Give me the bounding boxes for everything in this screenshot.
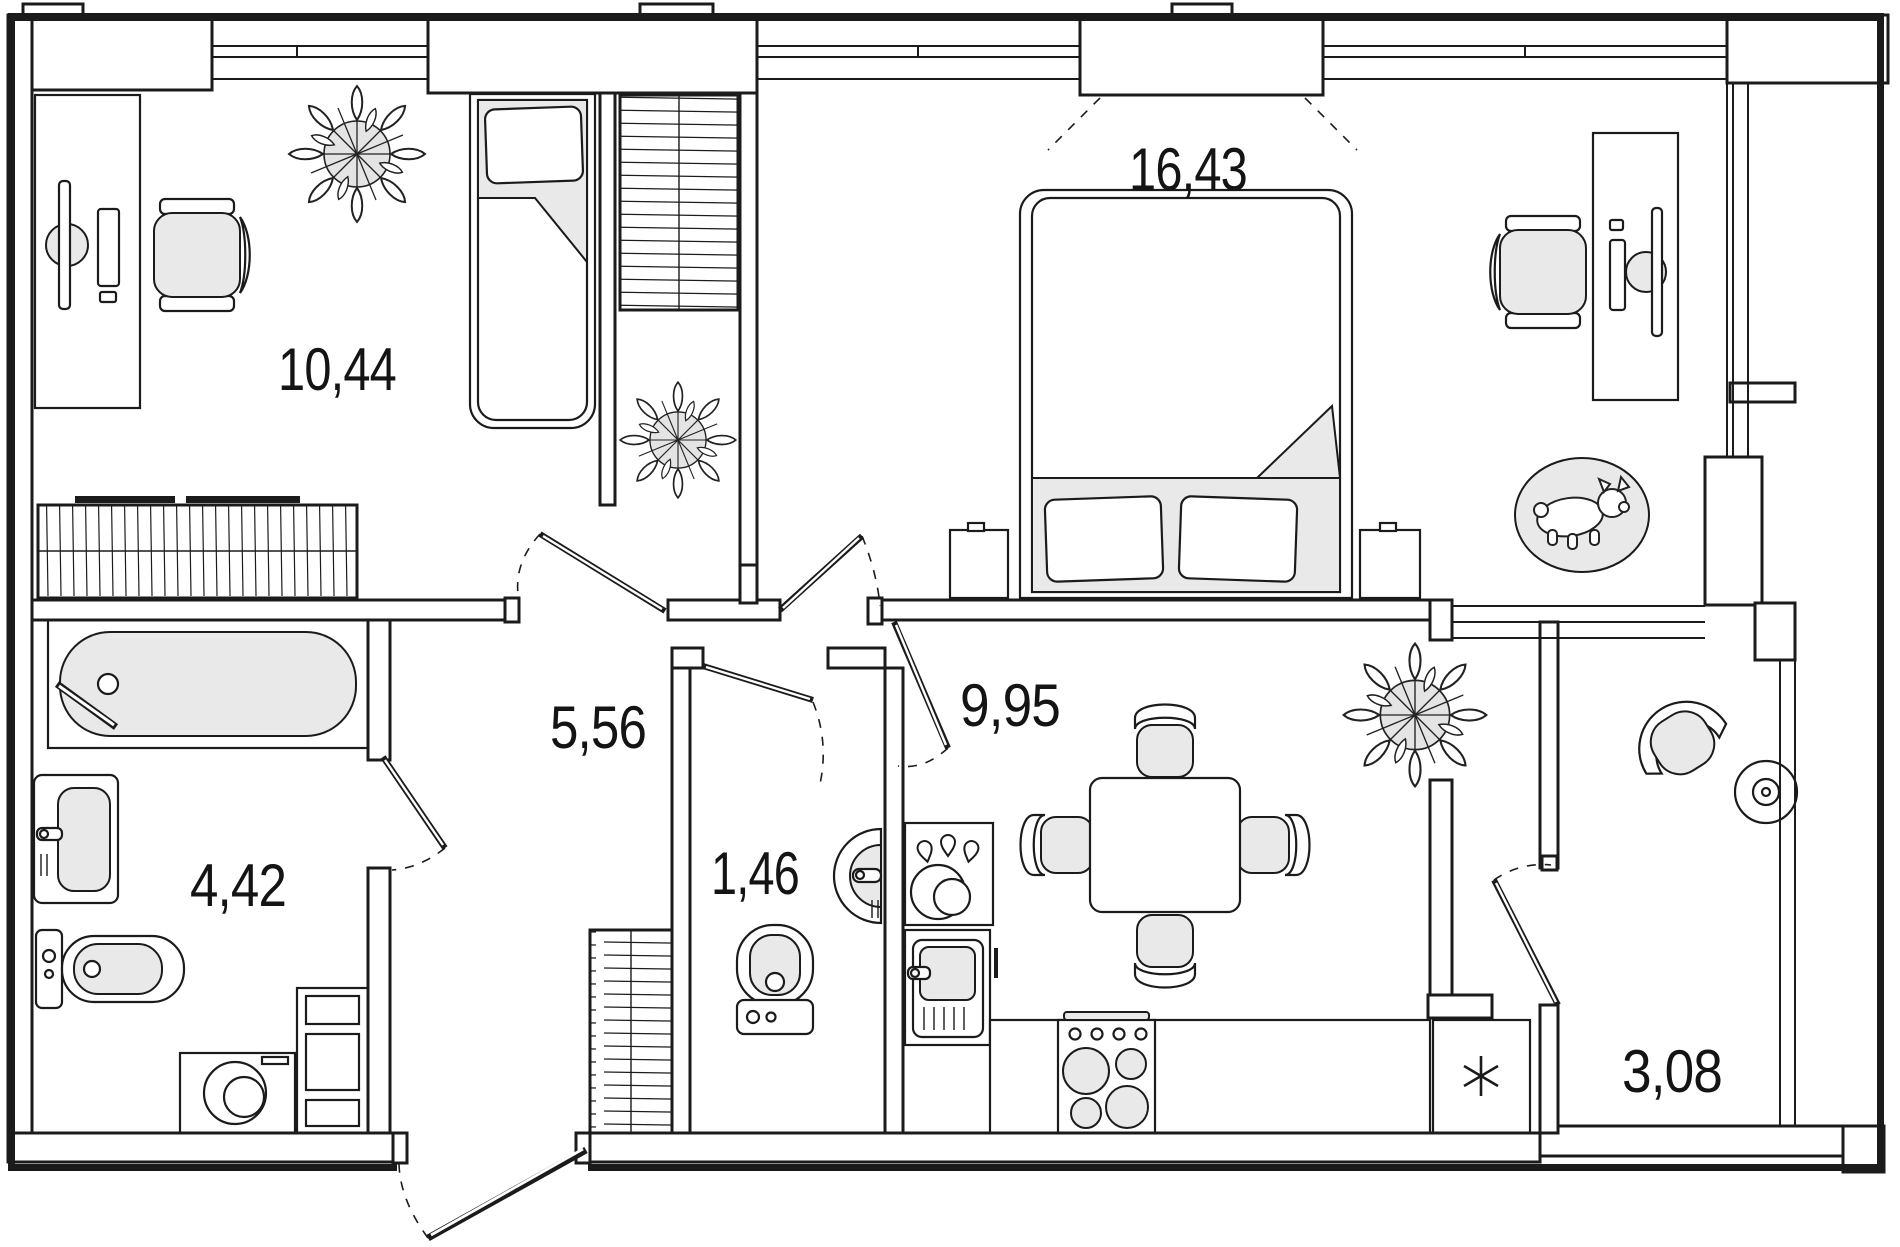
wall (8, 1133, 397, 1162)
monitor-icon (59, 181, 70, 309)
wall (668, 600, 780, 620)
wardrobe (38, 496, 357, 598)
nightstand (1360, 523, 1420, 598)
wall (740, 565, 757, 603)
window (212, 21, 428, 79)
wall (1428, 995, 1492, 1018)
keyboard-icon (1610, 240, 1625, 310)
wall (882, 600, 1430, 620)
wall (1540, 622, 1558, 868)
room-bathroom: 4,42 (34, 620, 368, 1133)
room-area-label-hallway: 5,56 (550, 694, 646, 761)
washer (905, 823, 993, 925)
door-jamb (393, 1133, 407, 1163)
room-area-label-bathroom: 4,42 (190, 852, 286, 919)
room-bedroom: 10,44 (35, 86, 595, 598)
wall (368, 868, 390, 1133)
wall (1430, 600, 1452, 640)
window (1780, 660, 1795, 1126)
monitor-icon (1652, 208, 1662, 336)
door (703, 666, 823, 784)
mouse-icon (1610, 220, 1623, 230)
room-area-label-master-bedroom: 16,43 (1129, 136, 1247, 203)
room-hallway: 5,56 (550, 694, 673, 1133)
potted-plant (289, 86, 425, 222)
potted-plant (620, 382, 736, 498)
room-area-label-bedroom: 10,44 (278, 336, 396, 403)
nightstand (950, 523, 1008, 598)
floor-plan: 10,44 (0, 0, 1900, 1247)
mouse-icon (100, 292, 116, 302)
door (383, 757, 445, 870)
single-bed (470, 94, 595, 428)
wall (885, 668, 903, 1133)
toilet (36, 930, 184, 1008)
dining-table (1090, 778, 1240, 912)
room-wc: 1,46 (711, 829, 881, 1034)
outer-edge (1877, 15, 1884, 1172)
wall (1705, 457, 1762, 605)
wall (828, 648, 885, 668)
wall (740, 93, 757, 565)
toilet (737, 925, 813, 1034)
wall (1540, 1126, 1843, 1156)
potted-plant (1344, 644, 1487, 787)
keyboard-icon (98, 209, 119, 286)
door-jamb (1542, 856, 1557, 870)
room-area-label-wc: 1,46 (711, 840, 799, 907)
bathtub (48, 620, 368, 748)
wall (368, 620, 390, 760)
shelf-unit (297, 988, 368, 1133)
wall (1727, 15, 1888, 83)
kitchen-sink (905, 930, 996, 1045)
pillow (1045, 496, 1164, 582)
office-chair (154, 199, 250, 311)
niche (620, 95, 738, 498)
wall (672, 668, 690, 1133)
room-area-label-kitchen-living: 9,95 (960, 672, 1060, 739)
room-master-bedroom: 16,43 (950, 133, 1678, 598)
desk (35, 95, 140, 408)
door (780, 536, 880, 610)
fridge (1433, 1020, 1530, 1133)
pillow (485, 106, 584, 183)
wardrobe-tall (620, 95, 738, 310)
wall (600, 93, 615, 505)
dining-chair (1237, 815, 1310, 875)
room-loggia: 3,08 (1621, 684, 1797, 1105)
sink (34, 775, 118, 903)
wall (1755, 603, 1795, 660)
window (1452, 606, 1705, 638)
washing-machine (180, 1053, 295, 1133)
dining-chair (1135, 915, 1195, 988)
pet-rug (1515, 458, 1649, 572)
outer-edge (8, 15, 15, 1165)
kitchen-counter (990, 1020, 1430, 1133)
door (1494, 865, 1558, 1005)
wall (1540, 1005, 1558, 1133)
wall (1080, 15, 1323, 95)
door (518, 534, 665, 611)
outer-edge (8, 13, 1884, 21)
corner-basin (834, 829, 881, 923)
wall (32, 600, 517, 620)
wardrobe-hall (590, 930, 673, 1133)
door-jamb (868, 598, 882, 624)
room-area-label-loggia: 3,08 (1622, 1038, 1722, 1105)
pillow (1179, 496, 1298, 582)
outer-edge (8, 1164, 397, 1171)
armchair (1621, 684, 1737, 792)
entrance-door (399, 1149, 586, 1238)
outer-edge (588, 1164, 1884, 1171)
door-jamb (505, 598, 519, 622)
wall (1430, 780, 1452, 995)
floor-plan-page: 10,44 (0, 0, 1900, 1247)
dining-chair (1021, 815, 1094, 875)
wall (12, 15, 212, 90)
window (1323, 46, 1727, 79)
side-table (1735, 761, 1797, 823)
window (757, 46, 1080, 79)
stove (1058, 1012, 1155, 1133)
wall (1730, 383, 1795, 402)
wall (428, 15, 757, 93)
wall (672, 648, 703, 668)
double-bed (1020, 190, 1352, 598)
dining-chair (1135, 705, 1195, 778)
desk (1593, 133, 1678, 400)
wall (588, 1133, 1540, 1162)
office-chair (1490, 216, 1586, 328)
